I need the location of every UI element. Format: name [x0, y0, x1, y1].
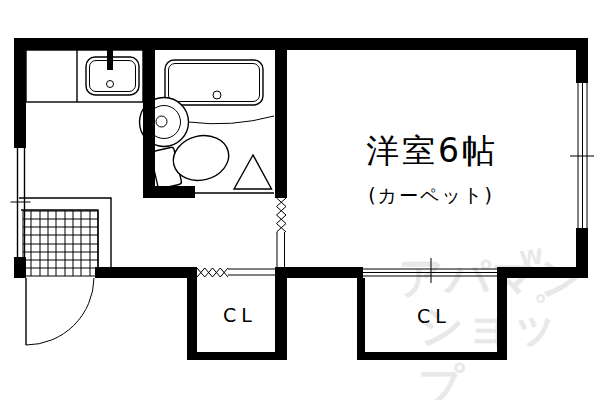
closet-right-wall-bottom — [357, 352, 507, 360]
right-wall-window — [570, 83, 594, 228]
closet-left-wall-r — [275, 267, 287, 360]
genkan-tile-grid — [23, 211, 98, 276]
left-wall-window — [11, 148, 31, 257]
bathroom-wall-left — [143, 50, 155, 198]
entry-door — [26, 278, 94, 345]
closet-left-label: CL — [223, 304, 257, 326]
closet-left-wall-bottom — [187, 352, 287, 360]
closet-right-sliding-door — [363, 258, 497, 283]
bathtub — [165, 60, 263, 105]
wall-right-upper — [576, 38, 588, 83]
bathroom-wall-right — [275, 50, 287, 198]
genkan-step-inner-line — [21, 210, 98, 276]
wall-right-lower — [576, 228, 588, 278]
closet-panel-lines — [228, 269, 277, 275]
wall-left-upper — [14, 38, 26, 148]
closet-left-wall-l — [187, 267, 197, 360]
accordion-door-partition — [277, 198, 287, 267]
western-room-sublabel: (カーペット) — [368, 184, 494, 206]
walls — [14, 38, 588, 360]
wall-top — [14, 38, 588, 50]
wall-bottom-c — [505, 267, 588, 278]
closet-right-wall-r — [497, 267, 507, 360]
corner-shelf-triangle — [234, 155, 272, 189]
closet-accordion-door — [197, 268, 228, 277]
kitchen-area — [26, 44, 143, 102]
wall-bottom-b — [287, 267, 363, 278]
bathroom-area — [140, 60, 275, 193]
wall-left-lower — [14, 257, 26, 278]
tub-drain-icon — [213, 91, 221, 99]
bathroom-wall-bottom — [143, 186, 195, 198]
wall-bottom-a — [95, 267, 197, 278]
partition-thin-wall — [277, 232, 285, 267]
sink-drain-icon — [107, 81, 114, 88]
kitchen-counter — [26, 50, 143, 102]
floor-plan-drawing: 洋室6帖 (カーペット) CL CL — [0, 0, 600, 400]
closet-right-wall-l — [357, 278, 365, 360]
closet-left-doors — [197, 268, 277, 277]
floor-plan-canvas: アパマン W ショップ ° — [0, 0, 600, 400]
closet-right-label: CL — [417, 305, 451, 327]
curtain-curve — [189, 116, 275, 124]
door-swing-arc — [26, 278, 94, 345]
western-room-label: 洋室6帖 — [366, 131, 498, 170]
